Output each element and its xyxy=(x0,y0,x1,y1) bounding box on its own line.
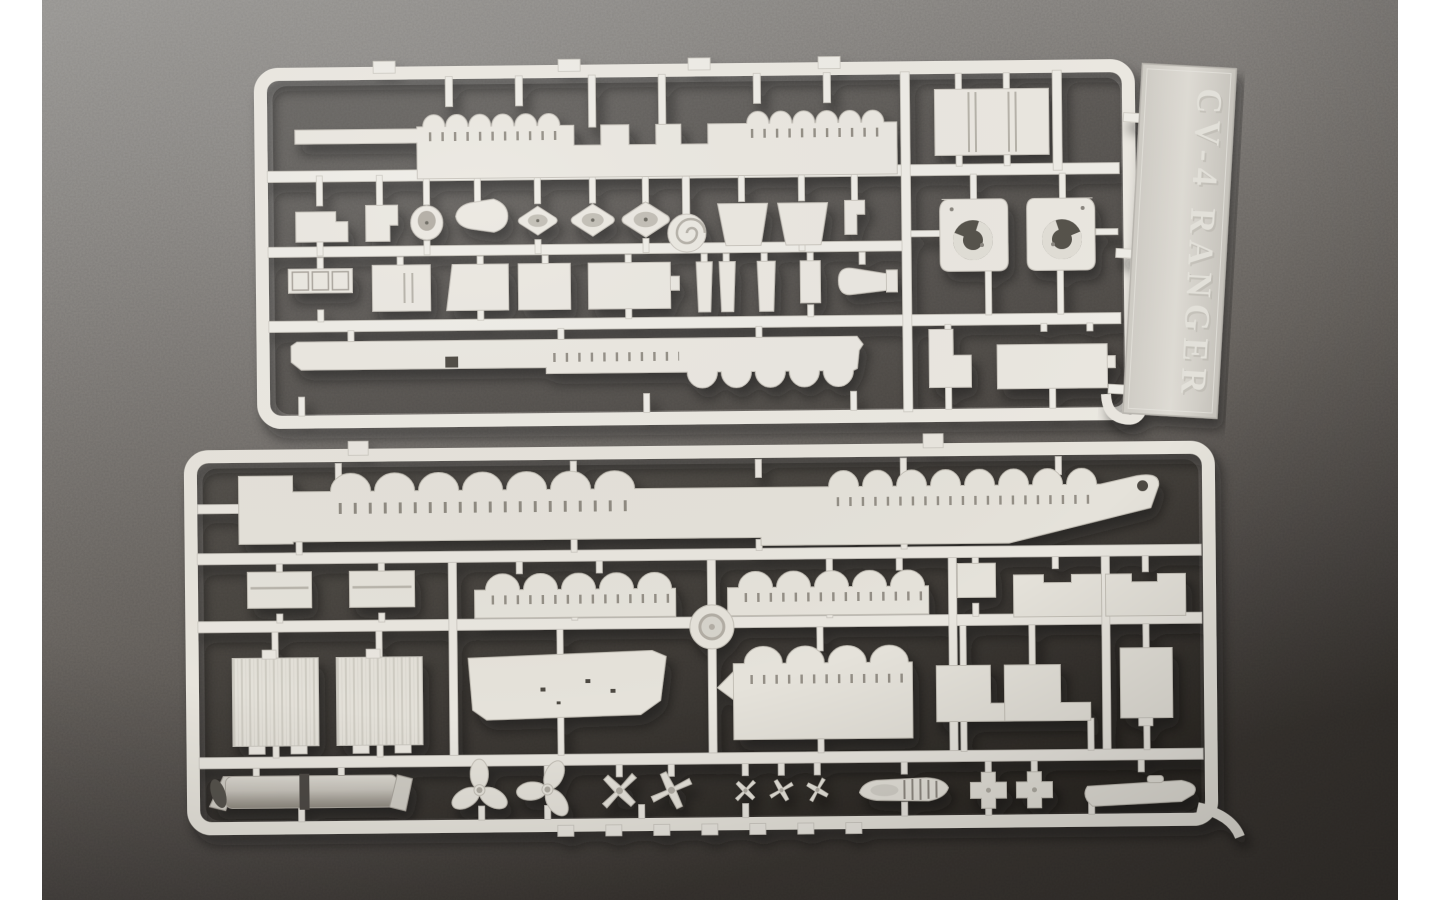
photo-canvas: CV-4 RANGER CV-4 RANGER xyxy=(0,0,1440,900)
photo-border-right xyxy=(1398,0,1440,900)
model-kit-sprues-photo: CV-4 RANGER CV-4 RANGER xyxy=(0,0,1440,900)
vignette xyxy=(42,0,1398,900)
photo-border-left xyxy=(0,0,42,900)
